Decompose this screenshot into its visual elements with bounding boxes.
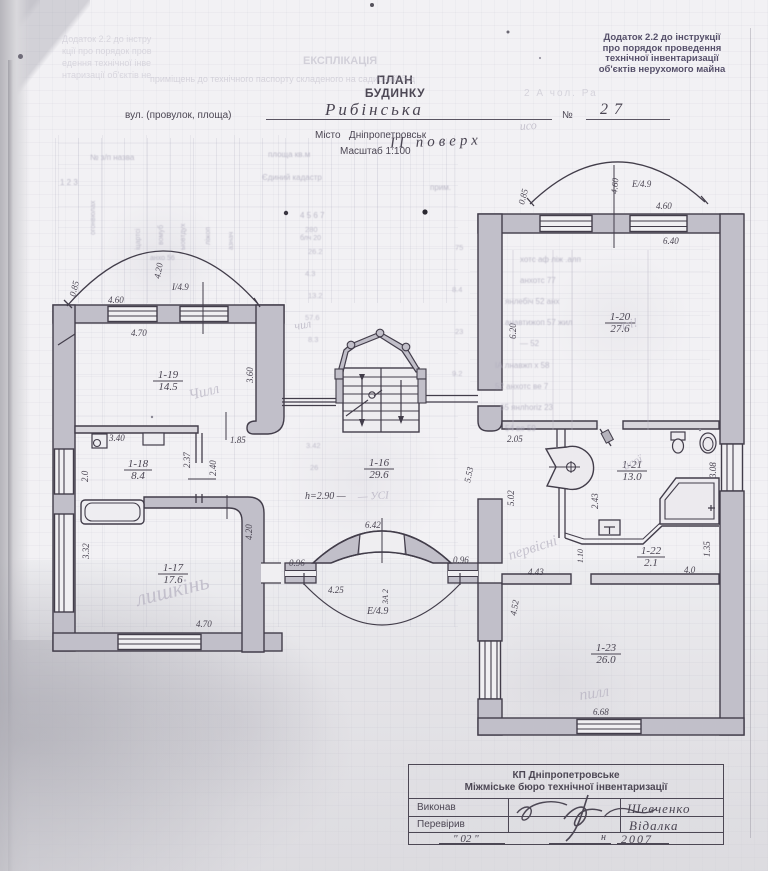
- svg-text:23: 23: [455, 327, 463, 336]
- svg-text:огонвюлах: огонвюлах: [90, 200, 97, 235]
- svg-text:вомуб: вомуб: [157, 225, 165, 245]
- svg-text:75: 75: [455, 243, 463, 252]
- svg-text:1.85: 1.85: [230, 435, 246, 445]
- svg-text:6.68: 6.68: [593, 707, 609, 717]
- svg-text:анхотс 77: анхотс 77: [520, 276, 556, 285]
- svg-text:1-18: 1-18: [128, 458, 149, 470]
- svg-text:первісні: первісні: [506, 533, 559, 564]
- svg-text:2.05: 2.05: [507, 434, 523, 444]
- svg-text:2.43: 2.43: [590, 493, 600, 509]
- svg-text:— УСІ: — УСІ: [357, 489, 391, 503]
- svg-text:26.0: 26.0: [596, 654, 616, 666]
- svg-text:h=2.90 —: h=2.90 —: [305, 491, 346, 502]
- svg-text:ЗА 2: ЗА 2: [381, 589, 390, 604]
- svg-text:0.96: 0.96: [453, 555, 469, 565]
- svg-text:4.25: 4.25: [328, 585, 344, 595]
- svg-text:ІА лнавжп х 58: ІА лнавжп х 58: [495, 361, 550, 370]
- svg-text:1-17: 1-17: [163, 562, 184, 574]
- svg-text:2.40: 2.40: [208, 460, 218, 476]
- svg-text:— 52: — 52: [520, 339, 540, 348]
- svg-text:пилл: пилл: [578, 683, 610, 704]
- svg-text:чил: чил: [293, 316, 312, 333]
- svg-text:лгі!: лгі!: [617, 314, 639, 333]
- svg-text:3.42: 3.42: [306, 441, 321, 450]
- svg-text:9.2: 9.2: [452, 369, 462, 378]
- svg-text:площа кв.м: площа кв.м: [268, 150, 310, 159]
- svg-text:прим.: прим.: [430, 183, 451, 192]
- svg-text:0.85: 0.85: [67, 279, 81, 297]
- svg-text:0.85: 0.85: [516, 187, 530, 205]
- svg-text:13.2: 13.2: [308, 291, 323, 300]
- svg-text:29.6: 29.6: [369, 469, 389, 481]
- svg-text:1-22: 1-22: [641, 545, 662, 557]
- svg-text:14.5: 14.5: [158, 381, 178, 393]
- svg-text:8.3: 8.3: [308, 335, 318, 344]
- svg-text:6.40: 6.40: [663, 236, 679, 246]
- svg-text:52 анхотс ве 7: 52 анхотс ве 7: [495, 382, 549, 391]
- svg-text:1.10: 1.10: [576, 549, 585, 563]
- svg-text:280: 280: [305, 225, 318, 234]
- svg-text:4.70: 4.70: [131, 328, 147, 338]
- svg-text:4.43: 4.43: [528, 567, 544, 577]
- svg-text:4.20: 4.20: [152, 262, 165, 280]
- svg-text:0.96: 0.96: [289, 558, 305, 568]
- svg-text:1-19: 1-19: [158, 369, 179, 381]
- svg-text:4 5 6 7: 4 5 6 7: [300, 211, 325, 220]
- svg-text:26: 26: [310, 463, 318, 472]
- svg-text:4.60: 4.60: [609, 177, 620, 194]
- svg-text:3.08: 3.08: [708, 462, 718, 479]
- svg-text:Е/4.9: Е/4.9: [366, 606, 388, 617]
- svg-text:блч 20: блч 20: [300, 234, 321, 242]
- svg-text:26.2: 26.2: [308, 247, 323, 256]
- svg-text:2.0: 2.0: [80, 470, 90, 482]
- svg-text:4.60: 4.60: [656, 201, 672, 211]
- svg-text:Чилл: Чилл: [187, 381, 221, 404]
- svg-text:№ з/п назва: № з/п назва: [90, 153, 135, 162]
- svg-text:8.4: 8.4: [452, 285, 462, 294]
- svg-text:исо: исо: [519, 118, 537, 133]
- svg-text:1-23: 1-23: [596, 642, 617, 654]
- svg-text:І/4.9: І/4.9: [171, 282, 189, 292]
- svg-text:54 ве 59: 54 ве 59: [505, 424, 536, 433]
- svg-text:1.35: 1.35: [702, 541, 712, 557]
- svg-text:2.37: 2.37: [182, 452, 192, 468]
- svg-text:ліжоп: ліжоп: [204, 227, 212, 245]
- svg-text:3.40: 3.40: [108, 433, 125, 443]
- svg-text:3.60: 3.60: [245, 367, 255, 384]
- svg-text:8.4: 8.4: [131, 470, 145, 482]
- svg-text:4.20: 4.20: [244, 524, 254, 540]
- svg-text:1 2 3: 1 2 3: [60, 178, 78, 187]
- svg-text:Єдиний кадастр: Єдиний кадастр: [262, 173, 322, 182]
- svg-text:3.32: 3.32: [81, 543, 91, 560]
- svg-text:2.1: 2.1: [644, 557, 658, 569]
- svg-text:4.3: 4.3: [305, 269, 315, 278]
- svg-text:іцартсі: іцартсі: [134, 228, 142, 250]
- svg-text:анавтижоп 57 жил: анавтижоп 57 жил: [505, 318, 573, 327]
- svg-text:1-16: 1-16: [369, 457, 390, 469]
- svg-text:6.42: 6.42: [365, 520, 381, 530]
- svg-text:4.60: 4.60: [108, 295, 124, 305]
- svg-text:4.70: 4.70: [196, 619, 212, 629]
- svg-text:65 янлhoriz 23: 65 янлhoriz 23: [500, 403, 554, 412]
- svg-text:азнач: азнач: [228, 231, 235, 250]
- svg-text:ыовтдух: ыовтдух: [180, 223, 187, 250]
- svg-text:Е/4.9: Е/4.9: [631, 179, 652, 189]
- svg-text:4.0: 4.0: [684, 565, 696, 575]
- svg-text:4.52: 4.52: [508, 599, 521, 617]
- svg-text:анхо 56: анхо 56: [150, 255, 175, 262]
- svg-text:5.53: 5.53: [462, 465, 475, 483]
- svg-text:5.02: 5.02: [506, 490, 516, 506]
